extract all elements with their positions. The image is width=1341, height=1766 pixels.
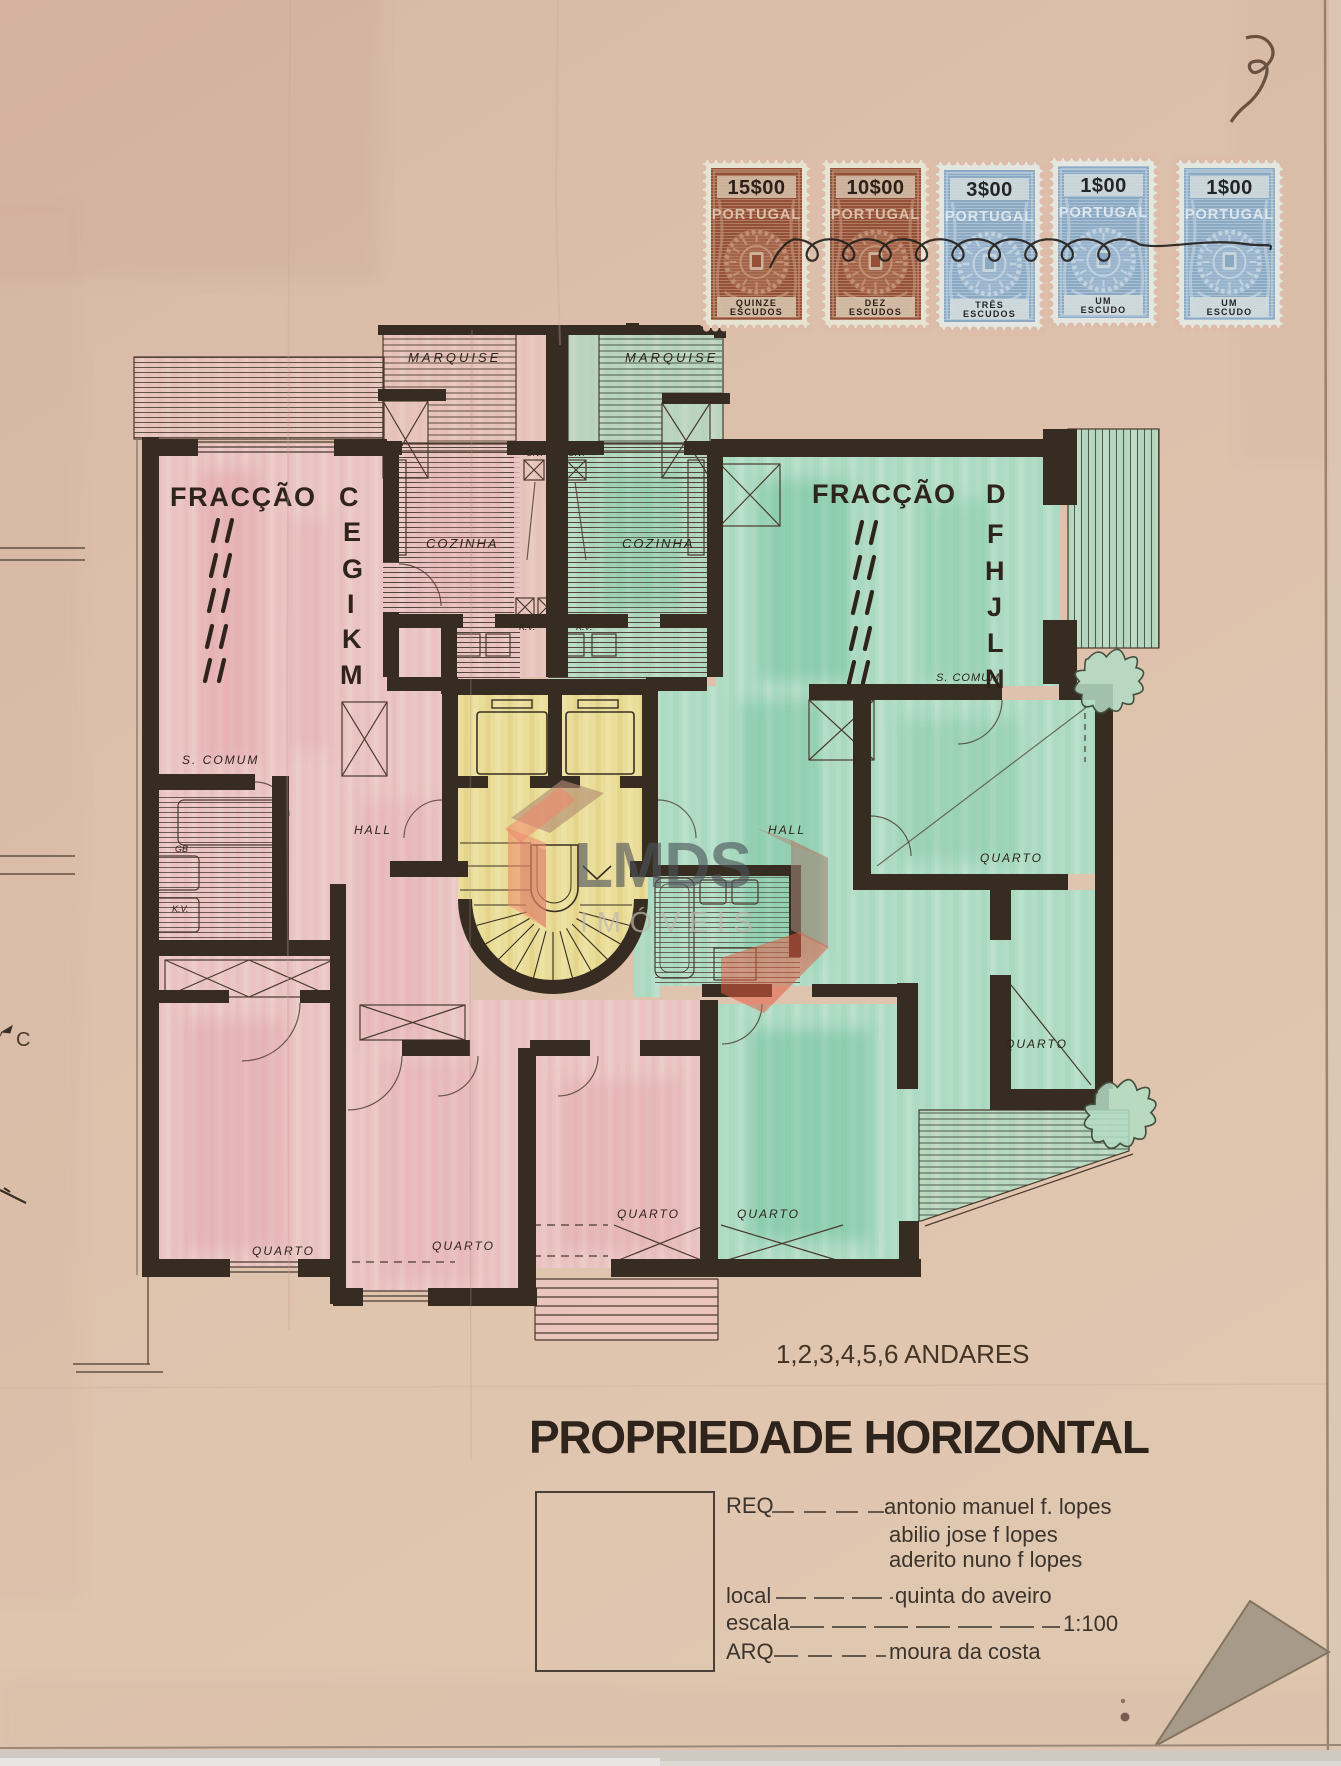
svg-text:local: local [726,1583,771,1608]
svg-text:ESCUDO: ESCUDO [1081,305,1127,315]
svg-text:ESCUDOS: ESCUDOS [730,307,783,317]
svg-text:QUARTO: QUARTO [1005,1037,1068,1051]
svg-text:COZINHA: COZINHA [426,536,499,551]
svg-text:QUARTO: QUARTO [980,851,1043,865]
svg-text:QUARTO: QUARTO [737,1207,800,1221]
svg-text:S. COMUM: S. COMUM [182,753,259,767]
svg-text:ARQ: ARQ [726,1639,774,1664]
svg-text:ESCUDOS: ESCUDOS [849,307,902,317]
svg-text:PORTUGAL: PORTUGAL [831,207,920,223]
svg-text:PORTUGAL: PORTUGAL [1059,205,1148,221]
svg-text:K.V.: K.V. [519,622,535,632]
svg-text:H: H [985,556,1005,586]
svg-text:C: C [16,1029,30,1051]
svg-text:LMDS: LMDS [574,829,752,901]
svg-text:QUARTO: QUARTO [432,1239,495,1253]
svg-text:aderito nuno f lopes: aderito nuno f lopes [889,1547,1082,1572]
svg-text:C: C [339,482,359,512]
svg-text:FRACÇÃO: FRACÇÃO [170,481,316,512]
svg-text:antonio manuel f. lopes: antonio manuel f. lopes [884,1494,1112,1519]
svg-text:10$00: 10$00 [846,177,904,199]
svg-text:S. COMUM: S. COMUM [936,672,1000,684]
svg-text:G: G [342,554,363,584]
svg-text:C.V.: C.V. [526,448,543,458]
svg-text:PORTUGAL: PORTUGAL [1185,207,1274,223]
svg-text:FRACÇÃO: FRACÇÃO [812,478,956,509]
svg-text:F: F [987,519,1004,549]
svg-text:15$00: 15$00 [727,177,785,199]
svg-text:QUARTO: QUARTO [252,1244,315,1258]
svg-text:K.V.: K.V. [576,622,592,632]
svg-text:D: D [986,479,1006,509]
svg-text:ESCUDOS: ESCUDOS [963,309,1016,319]
svg-text:IMÓVEIS: IMÓVEIS [580,906,760,939]
svg-text:moura da costa: moura da costa [889,1639,1041,1664]
svg-text:ESCUDO: ESCUDO [1207,307,1253,317]
svg-text:E: E [343,517,361,547]
svg-text:K.V.: K.V. [172,904,188,914]
svg-text:REQ: REQ [726,1493,774,1518]
svg-text:COZINHA: COZINHA [622,536,695,551]
svg-text:PORTUGAL: PORTUGAL [712,207,801,223]
svg-text:1:100: 1:100 [1063,1611,1118,1636]
svg-text:I: I [347,589,355,619]
svg-text:escala: escala [726,1610,790,1635]
svg-text:J: J [987,592,1002,622]
svg-text:PORTUGAL: PORTUGAL [945,209,1034,225]
svg-text:MARQUISE: MARQUISE [625,350,718,365]
svg-text:K: K [342,624,362,654]
svg-text:abilio jose f lopes: abilio jose f lopes [889,1522,1058,1547]
svg-text:PROPRIEDADE HORIZONTAL: PROPRIEDADE HORIZONTAL [529,1411,1153,1463]
svg-text:3$00: 3$00 [966,179,1013,201]
svg-text:1,2,3,4,5,6 ANDARES: 1,2,3,4,5,6 ANDARES [776,1339,1030,1369]
svg-text:GB: GB [175,844,188,854]
svg-text:1$00: 1$00 [1080,175,1127,197]
svg-text:QUARTO: QUARTO [617,1207,680,1221]
svg-text:C.V.: C.V. [568,448,585,458]
svg-text:HALL: HALL [354,823,392,837]
svg-text:MARQUISE: MARQUISE [408,350,501,365]
svg-text:1$00: 1$00 [1206,177,1253,199]
svg-text:M: M [340,660,363,690]
svg-text:quinta do aveiro: quinta do aveiro [895,1583,1052,1608]
svg-text:L: L [987,628,1004,658]
